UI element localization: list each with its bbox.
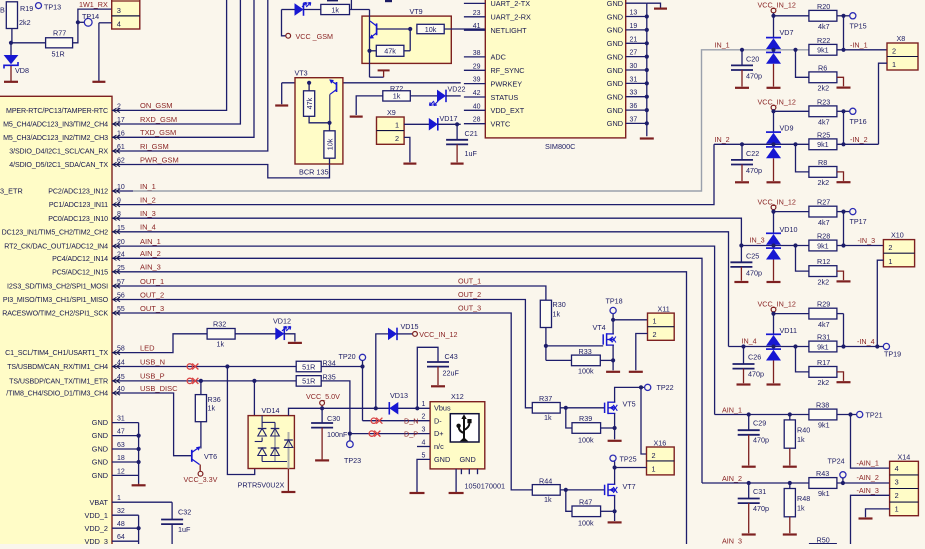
svg-text:1k: 1k: [208, 404, 216, 413]
svg-text:R37: R37: [539, 394, 552, 403]
svg-text:D_P: D_P: [404, 430, 418, 439]
svg-text:VT4: VT4: [593, 323, 606, 332]
svg-text:20: 20: [117, 239, 125, 246]
svg-text:VD10: VD10: [780, 225, 798, 234]
svg-text:VD13: VD13: [390, 391, 408, 400]
svg-text:USB_P: USB_P: [140, 372, 165, 381]
svg-text:10k: 10k: [325, 138, 334, 150]
svg-text:42: 42: [473, 90, 481, 97]
svg-text:USB_DISC: USB_DISC: [140, 384, 178, 393]
svg-text:VCC_IN_12: VCC_IN_12: [758, 98, 796, 107]
svg-text:1: 1: [117, 495, 121, 502]
svg-text:VT7: VT7: [623, 482, 636, 491]
svg-text:C20: C20: [746, 55, 759, 64]
svg-text:2: 2: [422, 414, 426, 421]
svg-text:1k: 1k: [393, 92, 401, 101]
svg-text:55: 55: [117, 306, 125, 313]
svg-text:TP17: TP17: [850, 217, 867, 226]
svg-text:470p: 470p: [753, 504, 769, 513]
svg-text:100k: 100k: [578, 519, 594, 528]
svg-text:GND: GND: [607, 26, 623, 35]
svg-text:TXD_GSM: TXD_GSM: [140, 128, 176, 137]
svg-text:5: 5: [422, 452, 426, 459]
svg-text:TS/USBDM/CAN_RX/TIM1_CH4: TS/USBDM/CAN_RX/TIM1_CH4: [7, 363, 108, 371]
svg-text:D+: D+: [434, 429, 444, 438]
svg-text:R43: R43: [816, 469, 829, 478]
svg-text:1: 1: [395, 121, 399, 130]
svg-text:VCC_3.3V: VCC_3.3V: [184, 475, 218, 484]
svg-text:R50: R50: [817, 536, 830, 545]
svg-text:-AIN_1: -AIN_1: [857, 458, 879, 467]
svg-text:R77: R77: [53, 29, 66, 38]
svg-text:PC4/ADC12_IN14: PC4/ADC12_IN14: [52, 255, 108, 263]
svg-text:51R: 51R: [302, 377, 315, 386]
svg-text:ADC: ADC: [491, 53, 506, 62]
svg-text:C29: C29: [753, 419, 766, 428]
svg-text:1: 1: [888, 257, 892, 266]
svg-text:2k2: 2k2: [818, 378, 830, 387]
svg-text:R32: R32: [213, 320, 226, 329]
svg-text:C22: C22: [746, 149, 759, 158]
svg-text:PC5/ADC12_IN15: PC5/ADC12_IN15: [52, 268, 108, 276]
svg-text:21: 21: [630, 36, 638, 43]
svg-text:47k: 47k: [305, 97, 314, 109]
svg-text:X9: X9: [387, 108, 396, 117]
svg-text:16: 16: [117, 130, 125, 137]
svg-text:R23: R23: [817, 97, 830, 106]
svg-text:X11: X11: [658, 305, 670, 314]
svg-text:1uF: 1uF: [178, 525, 191, 534]
svg-text:100k: 100k: [578, 436, 594, 445]
svg-text:40: 40: [117, 386, 125, 393]
svg-text:4: 4: [895, 464, 899, 473]
svg-text:PC2/ADC123_IN12: PC2/ADC123_IN12: [48, 188, 108, 196]
svg-text:61: 61: [117, 144, 125, 151]
svg-text:VT6: VT6: [204, 452, 217, 461]
svg-text:VDD_3: VDD_3: [84, 537, 108, 544]
svg-text:R22: R22: [817, 36, 830, 45]
svg-text:39: 39: [473, 77, 481, 84]
svg-text:-IN_1: -IN_1: [850, 40, 868, 49]
svg-text:D-: D-: [434, 416, 442, 425]
svg-text:R25: R25: [817, 130, 830, 139]
svg-text:GND: GND: [607, 66, 623, 75]
svg-text:56: 56: [117, 293, 125, 300]
svg-text:C30: C30: [327, 414, 340, 423]
svg-text:GND: GND: [460, 455, 476, 464]
svg-text:-IN_3: -IN_3: [858, 236, 876, 245]
svg-text:IN_2: IN_2: [715, 135, 730, 144]
svg-text:63: 63: [117, 442, 125, 449]
svg-text:C25: C25: [746, 251, 759, 260]
svg-text:1: 1: [892, 60, 896, 69]
svg-text:TP22: TP22: [657, 383, 674, 392]
svg-text:VD22: VD22: [448, 85, 466, 94]
svg-text:3_ETR: 3_ETR: [0, 187, 23, 196]
svg-text:470p: 470p: [746, 166, 762, 175]
svg-text:2: 2: [652, 451, 656, 460]
svg-text:-IN_4: -IN_4: [857, 337, 875, 346]
svg-text:32: 32: [117, 508, 125, 515]
svg-text:IN_1: IN_1: [140, 182, 156, 191]
svg-text:AIN_3: AIN_3: [722, 537, 742, 545]
svg-text:R30: R30: [553, 300, 566, 309]
svg-text:VT9: VT9: [410, 7, 423, 16]
svg-text:TP16: TP16: [850, 117, 867, 126]
svg-text:VD8: VD8: [15, 66, 29, 75]
svg-text:AIN_2: AIN_2: [140, 249, 161, 258]
svg-text:RI_GSM: RI_GSM: [140, 142, 169, 151]
svg-text:R27: R27: [817, 198, 830, 207]
svg-text:IN_4: IN_4: [742, 337, 757, 346]
svg-text:OUT_2: OUT_2: [140, 290, 164, 299]
svg-text:VD15: VD15: [401, 322, 419, 331]
svg-text:IN_3: IN_3: [750, 236, 765, 245]
svg-text:10: 10: [117, 184, 125, 191]
svg-text:22uF: 22uF: [443, 369, 460, 378]
svg-text:AIN_3: AIN_3: [140, 263, 161, 272]
svg-text:51R: 51R: [302, 362, 315, 371]
svg-text:9: 9: [117, 198, 121, 205]
svg-text:4k7: 4k7: [818, 320, 830, 329]
svg-text:4k7: 4k7: [818, 22, 830, 31]
svg-text:R39: R39: [579, 414, 592, 423]
svg-text:C26: C26: [748, 353, 761, 362]
svg-text:TP24: TP24: [828, 456, 845, 465]
svg-text:64: 64: [117, 534, 125, 541]
svg-text:12: 12: [117, 468, 125, 475]
svg-text:2: 2: [895, 491, 899, 500]
svg-text:25: 25: [117, 265, 125, 272]
svg-text:M5_CH4/ADC123_IN3/TIM2_CH4: M5_CH4/ADC123_IN3/TIM2_CH4: [3, 121, 108, 129]
svg-text:TP25: TP25: [620, 455, 637, 464]
svg-text:37: 37: [630, 116, 638, 123]
svg-text:470p: 470p: [746, 268, 762, 277]
svg-text:47: 47: [117, 429, 125, 436]
svg-text:MPER-RTC/PC13/TAMPER-RTC: MPER-RTC/PC13/TAMPER-RTC: [6, 107, 108, 115]
svg-text:-IN_2: -IN_2: [850, 135, 868, 144]
svg-text:47k: 47k: [384, 47, 396, 56]
svg-text:VD12: VD12: [273, 317, 291, 326]
svg-text:19: 19: [630, 23, 638, 30]
svg-text:AIN_1: AIN_1: [140, 237, 161, 246]
svg-text:1k: 1k: [553, 310, 561, 319]
svg-text:3: 3: [422, 427, 426, 434]
svg-text:R35: R35: [323, 373, 336, 382]
svg-text:TP23: TP23: [344, 456, 361, 465]
svg-text:4: 4: [422, 440, 426, 447]
svg-text:8: 8: [117, 211, 121, 218]
svg-text:PRTR5V0U2X: PRTR5V0U2X: [238, 481, 285, 490]
svg-text:X14: X14: [898, 452, 911, 461]
svg-text:PWR_GSM: PWR_GSM: [140, 155, 179, 164]
svg-text:LED: LED: [140, 343, 155, 352]
svg-text:R20: R20: [817, 2, 830, 11]
svg-text:BCR 135: BCR 135: [299, 168, 329, 177]
svg-text:VBAT: VBAT: [89, 498, 108, 507]
svg-text:GND: GND: [92, 431, 108, 440]
svg-text:C32: C32: [178, 508, 191, 517]
svg-text:GND: GND: [607, 119, 623, 128]
svg-text:2k2: 2k2: [818, 277, 830, 286]
svg-text:9k1: 9k1: [817, 140, 829, 149]
svg-text:29: 29: [473, 63, 481, 70]
svg-text:I2S3_SD/TIM3_CH2/SPI1_MOSI: I2S3_SD/TIM3_CH2/SPI1_MOSI: [7, 283, 108, 291]
svg-text:OUT_3: OUT_3: [140, 304, 164, 313]
svg-text:4k7: 4k7: [818, 118, 830, 127]
svg-text:VDD_1: VDD_1: [84, 511, 108, 520]
svg-text:15: 15: [117, 225, 125, 232]
svg-text:58: 58: [117, 346, 125, 353]
svg-text:IN_2: IN_2: [140, 195, 156, 204]
svg-text:R33: R33: [579, 347, 592, 356]
svg-text:IN_4: IN_4: [140, 223, 156, 232]
svg-text:OUT_3: OUT_3: [458, 304, 481, 313]
svg-text:X16: X16: [654, 438, 667, 447]
svg-text:GND: GND: [607, 106, 623, 115]
svg-text:1k: 1k: [797, 504, 805, 513]
svg-text:VCC_5.0V: VCC_5.0V: [306, 392, 340, 401]
svg-text:SIM800C: SIM800C: [545, 142, 575, 151]
svg-text:R12: R12: [817, 257, 830, 266]
svg-text:M5_CH3/ADC123_IN2/TIM2_CH3: M5_CH3/ADC123_IN2/TIM2_CH3: [3, 134, 108, 142]
svg-text:1: 1: [895, 505, 899, 514]
svg-text:100k: 100k: [578, 367, 594, 376]
svg-text:UART_2-TX: UART_2-TX: [491, 0, 531, 8]
svg-text:RT2_CK/DAC_OUT1/ADC12_IN4: RT2_CK/DAC_OUT1/ADC12_IN4: [4, 243, 108, 251]
svg-text:n/c: n/c: [434, 442, 444, 451]
svg-text:TP13: TP13: [44, 3, 61, 12]
svg-text:GND: GND: [607, 12, 623, 21]
svg-text:1: 1: [653, 317, 657, 326]
svg-text:VD9: VD9: [780, 124, 794, 133]
svg-text:R44: R44: [539, 476, 552, 485]
svg-text:9k1: 9k1: [818, 420, 830, 429]
svg-text:R29: R29: [817, 300, 830, 309]
svg-text:470p: 470p: [753, 436, 769, 445]
svg-text:30: 30: [630, 63, 638, 70]
svg-text:1k: 1k: [217, 340, 225, 349]
svg-text:470p: 470p: [748, 370, 764, 379]
svg-text:23: 23: [473, 10, 481, 17]
svg-text:R31: R31: [817, 333, 830, 342]
svg-text:GND: GND: [92, 418, 108, 427]
svg-text:X10: X10: [891, 230, 904, 239]
svg-text:VDD_2: VDD_2: [84, 524, 108, 533]
svg-text:44: 44: [117, 360, 125, 367]
svg-text:GND: GND: [607, 52, 623, 61]
svg-text:9k1: 9k1: [818, 489, 830, 498]
svg-text:17: 17: [117, 117, 125, 124]
svg-text:R47: R47: [579, 498, 592, 507]
svg-text:TP18: TP18: [606, 297, 623, 306]
svg-text:R6: R6: [818, 63, 827, 72]
svg-text:13: 13: [630, 10, 638, 17]
svg-text:TP20: TP20: [339, 352, 356, 361]
svg-text:AIN_1: AIN_1: [722, 405, 742, 414]
svg-text:VCC_IN_12: VCC_IN_12: [419, 330, 457, 339]
svg-text:Vbus: Vbus: [434, 403, 451, 412]
svg-text:R28: R28: [817, 232, 830, 241]
svg-text:2: 2: [395, 134, 399, 143]
svg-text:R72: R72: [390, 84, 403, 93]
svg-text:GND: GND: [92, 471, 108, 480]
svg-text:57: 57: [117, 279, 125, 286]
svg-text:PC0/ADC123_IN10: PC0/ADC123_IN10: [48, 215, 108, 223]
svg-text:STATUS: STATUS: [491, 93, 519, 102]
svg-text:10k: 10k: [425, 25, 437, 34]
svg-text:38: 38: [473, 50, 481, 57]
svg-text:/TIM8_CH4/SDIO_D1/TIM3_CH4: /TIM8_CH4/SDIO_D1/TIM3_CH4: [6, 390, 108, 398]
svg-text:PI3_MISO/TIM3_CH1/SPI1_MISO: PI3_MISO/TIM3_CH1/SPI1_MISO: [3, 296, 109, 304]
svg-text:1: 1: [422, 401, 426, 408]
svg-text:GND: GND: [434, 455, 450, 464]
svg-text:IN_3: IN_3: [140, 209, 156, 218]
svg-text:OUT_1: OUT_1: [140, 277, 164, 286]
svg-text:1k: 1k: [544, 413, 552, 422]
svg-text:28: 28: [473, 117, 481, 124]
svg-text:2: 2: [888, 243, 892, 252]
svg-text:3: 3: [895, 478, 899, 487]
svg-text:VD17: VD17: [440, 114, 458, 123]
svg-text:36: 36: [630, 103, 638, 110]
svg-text:D_N: D_N: [404, 417, 418, 426]
svg-text:RACESWO/TIM2_CH2/SPI1_SCK: RACESWO/TIM2_CH2/SPI1_SCK: [2, 310, 108, 318]
svg-text:1W1_RX: 1W1_RX: [79, 0, 108, 9]
svg-text:470p: 470p: [746, 72, 762, 81]
svg-text:C31: C31: [753, 487, 766, 496]
svg-text:-AIN_3: -AIN_3: [857, 486, 879, 495]
svg-text:DC123_IN1/TIM5_CH2/TIM2_CH2: DC123_IN1/TIM5_CH2/TIM2_CH2: [2, 228, 109, 236]
svg-text:OUT_2: OUT_2: [458, 290, 481, 299]
svg-text:1050170001: 1050170001: [465, 482, 506, 491]
svg-text:VCC_IN_12: VCC_IN_12: [758, 1, 796, 10]
svg-text:AIN_2: AIN_2: [722, 474, 742, 483]
svg-text:VD11: VD11: [780, 326, 797, 335]
svg-text:VT5: VT5: [623, 400, 636, 409]
svg-text:VT3: VT3: [295, 69, 308, 78]
svg-text:R19: R19: [20, 4, 33, 13]
svg-text:TP14: TP14: [82, 12, 99, 21]
svg-text:VRTC: VRTC: [491, 120, 511, 129]
svg-text:R8: R8: [818, 158, 827, 167]
svg-text:2k2: 2k2: [19, 18, 31, 27]
svg-text:1k: 1k: [544, 495, 552, 504]
svg-text:GND: GND: [607, 93, 623, 102]
svg-text:27: 27: [630, 50, 638, 57]
svg-text:VCC_IN_12: VCC_IN_12: [758, 197, 796, 206]
svg-text:PWRKEY: PWRKEY: [491, 79, 523, 88]
svg-text:ON_GSM: ON_GSM: [140, 101, 173, 110]
svg-text:33: 33: [630, 90, 638, 97]
svg-text:R38: R38: [816, 401, 829, 410]
svg-text:C43: C43: [445, 352, 458, 361]
svg-text:1k: 1k: [331, 5, 339, 14]
svg-text:VD14: VD14: [262, 406, 280, 415]
svg-text:X8: X8: [897, 34, 906, 43]
svg-text:2: 2: [653, 330, 657, 339]
svg-text:GND: GND: [92, 445, 108, 454]
svg-text:2: 2: [117, 103, 121, 110]
svg-text:100nF: 100nF: [327, 430, 348, 439]
svg-text:R17: R17: [817, 358, 830, 367]
svg-text:GND: GND: [92, 458, 108, 467]
svg-text:4: 4: [117, 20, 121, 29]
svg-text:IN_1: IN_1: [715, 40, 730, 49]
svg-text:USB_N: USB_N: [140, 357, 165, 366]
svg-text:TP15: TP15: [850, 21, 867, 30]
svg-text:VCC _GSM: VCC _GSM: [296, 32, 334, 41]
svg-text:48: 48: [117, 521, 125, 528]
svg-text:C21: C21: [465, 129, 478, 138]
svg-text:4/SDIO_D5/I2C1_SDA/CAN_TX: 4/SDIO_D5/I2C1_SDA/CAN_TX: [9, 161, 108, 169]
svg-text:1uF: 1uF: [465, 149, 478, 158]
svg-text:2: 2: [892, 47, 896, 56]
svg-text:GND: GND: [607, 79, 623, 88]
svg-text:45: 45: [117, 374, 125, 381]
svg-text:51R: 51R: [52, 50, 65, 59]
svg-text:OUT_1: OUT_1: [458, 277, 481, 286]
svg-text:-AIN_2: -AIN_2: [857, 473, 879, 482]
svg-text:18: 18: [117, 455, 125, 462]
svg-text:2k2: 2k2: [818, 84, 830, 93]
svg-text:C1_SCL/TIM4_CH1/USART1_TX: C1_SCL/TIM4_CH1/USART1_TX: [5, 349, 108, 357]
svg-text:NETLIGHT: NETLIGHT: [491, 26, 528, 35]
svg-text:GND: GND: [607, 39, 623, 48]
svg-text:TS/USBDP/CAN_TX/TIM1_ETR: TS/USBDP/CAN_TX/TIM1_ETR: [9, 378, 108, 386]
svg-text:3: 3: [117, 6, 121, 15]
svg-text:VD7: VD7: [780, 28, 794, 37]
svg-text:RXD_GSM: RXD_GSM: [140, 115, 177, 124]
svg-text:TP21: TP21: [866, 411, 883, 420]
svg-text:41: 41: [473, 23, 481, 30]
svg-text:VDD_EXT: VDD_EXT: [491, 106, 525, 115]
svg-text:4k7: 4k7: [818, 218, 830, 227]
svg-text:PC1/ADC123_IN11: PC1/ADC123_IN11: [49, 201, 108, 209]
svg-text:RF_SYNC: RF_SYNC: [491, 66, 525, 75]
svg-text:1k: 1k: [797, 435, 805, 444]
svg-text:31: 31: [117, 416, 125, 423]
svg-text:UART_2-RX: UART_2-RX: [491, 13, 532, 22]
svg-text:R40: R40: [797, 426, 810, 435]
svg-text:62: 62: [117, 158, 125, 165]
svg-text:R48: R48: [797, 494, 810, 503]
svg-text:3/SDIO_D4/I2C1_SCL/CAN_RX: 3/SDIO_D4/I2C1_SCL/CAN_RX: [9, 148, 108, 156]
svg-text:24: 24: [117, 251, 125, 258]
svg-text:2k2: 2k2: [818, 178, 830, 187]
svg-text:GND: GND: [607, 0, 623, 8]
svg-text:9k1: 9k1: [817, 46, 829, 55]
svg-text:1: 1: [652, 464, 656, 473]
svg-text:TP19: TP19: [884, 350, 901, 359]
svg-text:9k1: 9k1: [817, 241, 829, 250]
svg-text:31: 31: [630, 76, 638, 83]
svg-text:40: 40: [473, 103, 481, 110]
svg-text:VCC_IN_12: VCC_IN_12: [758, 300, 796, 309]
svg-text:B: B: [0, 6, 5, 15]
svg-text:X12: X12: [451, 392, 464, 401]
svg-text:9k1: 9k1: [817, 342, 829, 351]
